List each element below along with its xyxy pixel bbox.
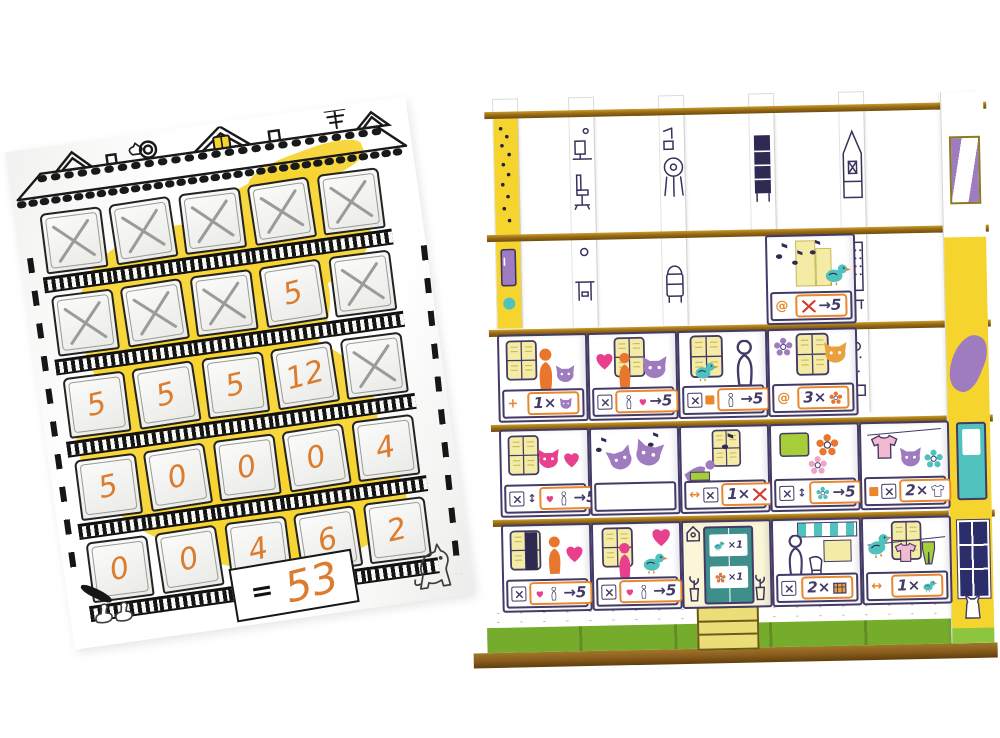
balcony-planter: @ 3× (772, 382, 855, 413)
flower-icon (715, 572, 726, 583)
balcony-planter: →5 (506, 578, 589, 609)
potted-plant-icon (686, 575, 703, 603)
paint-splat-icon (773, 337, 793, 357)
heart-icon (563, 543, 585, 563)
crossed-window-checkbox-icon (703, 487, 718, 502)
crossed-window-checkbox-icon (687, 393, 702, 408)
repeat-icon: @ (775, 300, 788, 313)
shop-window (823, 540, 851, 563)
window-cell: 0 (143, 443, 215, 530)
divider-bed-panel (661, 238, 689, 326)
window-cell: X (247, 177, 319, 264)
window-cell: X (120, 278, 192, 365)
crossed-window-checkbox-icon (881, 484, 896, 499)
person-icon (546, 586, 561, 600)
crate-icon (832, 580, 847, 594)
rule-text: →5 (563, 585, 586, 600)
cushion (690, 471, 710, 480)
orange-square-icon (705, 395, 714, 404)
bird-icon (714, 540, 726, 551)
music-note-icon (775, 241, 788, 260)
box-cats-jam-session (589, 426, 681, 516)
curtain-window-icon (949, 136, 981, 205)
entrance-double-door: ×1 ×1 (703, 526, 755, 605)
door-sign: ×1 (709, 534, 747, 557)
balcony-planter: 2× (864, 476, 947, 507)
divider-fridge-panel (495, 241, 523, 329)
score-sheet: X X X X X X X X 5 X 5 5 5 12 X 5 (5, 96, 475, 649)
heart-icon (545, 491, 554, 505)
cat-icon (639, 353, 670, 382)
rule-plate: →5 (809, 480, 861, 504)
balcony-planter: →5 (596, 576, 679, 607)
rule-text: 1× (897, 578, 920, 593)
flower-icon (815, 433, 839, 457)
fridge-doodle-icon (496, 241, 522, 328)
total-value: 53 (280, 556, 342, 610)
box-bird-laundry: ↔ 1× (861, 515, 953, 605)
heart-icon (649, 525, 673, 547)
window-cell: 5 (62, 370, 134, 457)
flower-icon (828, 390, 843, 404)
desk-chair-doodle-icon (569, 117, 595, 233)
window-value: 0 (303, 441, 329, 475)
crossed-window-checkbox-icon (779, 486, 794, 501)
flower-icon (923, 449, 943, 469)
window-value: 5 (84, 388, 109, 422)
bed-doodle-icon (662, 238, 688, 325)
balcony-planter: ↕ →5 (774, 477, 857, 508)
box-woman-heart-cat: →5 (587, 331, 679, 421)
music-note-icon (791, 248, 803, 265)
box-cat-in-sweater: ↕ →5 (499, 428, 591, 518)
window-cell: X (178, 186, 250, 273)
sign-text: ×1 (728, 571, 744, 582)
window-value: 5 (153, 378, 179, 412)
rule-plate: →5 (795, 294, 847, 318)
balcony-planter: →5 (592, 386, 675, 417)
balcony-planter: →5 (682, 384, 765, 415)
rule-text: 1× (533, 396, 556, 411)
window-cell: 5 (201, 351, 273, 438)
divider-table-panel (571, 240, 599, 328)
crossed-window-checkbox-icon (601, 584, 616, 599)
rule-text: →5 (818, 298, 841, 313)
rule-plate: →5 (619, 579, 682, 603)
balcony-planter: @ →5 (770, 290, 853, 321)
cat-doodle-icon (406, 539, 458, 593)
box-man-in-love: →5 (501, 523, 593, 613)
crossed-window-icon (752, 487, 767, 501)
divider-drums-panel (658, 115, 686, 232)
crossed-window-icon (801, 299, 816, 313)
rule-plate: →5 (529, 581, 592, 605)
balcony-planter: ↕ →5 (504, 483, 587, 514)
divider-dresser-panel (748, 113, 776, 230)
open-shutter (525, 532, 538, 570)
window-value: X (211, 286, 238, 320)
window-cell: X (189, 269, 261, 356)
window-value: 5 (96, 470, 121, 504)
box-entrance-door: ×1 ×1 (681, 519, 773, 609)
window-value: 0 (234, 451, 259, 485)
cat-icon (558, 396, 573, 410)
music-note-icon (721, 431, 734, 450)
rule-plate: →5 (615, 389, 678, 413)
rule-plate: 3× (797, 386, 849, 410)
box-lounging-woman: ↔ 1× (679, 424, 771, 514)
shelf-bar (487, 226, 943, 243)
window-value: X (60, 223, 87, 257)
table-doodle-icon (572, 240, 598, 327)
window-cell: 12 (270, 341, 342, 428)
potted-plant-icon (752, 573, 769, 601)
attic-doodle-icon (839, 111, 865, 227)
box-grandma-and-cat: + 1× (497, 333, 589, 423)
window-cell: 4 (351, 413, 423, 500)
dresser-doodle-icon (749, 113, 775, 229)
person-icon (621, 394, 636, 408)
horizontal-arrows-icon: ↔ (871, 580, 882, 593)
window-value: X (141, 296, 169, 330)
door-sign: ×1 (710, 566, 748, 589)
bird-icon (642, 551, 668, 574)
window-value: 4 (373, 431, 398, 465)
product-photo: X X X X X X X X 5 X 5 5 5 12 X 5 (0, 0, 1000, 738)
shelf-bar (484, 103, 940, 120)
person-icon (636, 584, 651, 598)
shirt-icon (930, 483, 945, 497)
heart-icon (638, 394, 647, 408)
balcony-planter: + 1× (502, 388, 585, 419)
rule-plate: 1× (721, 482, 773, 506)
balcony-planter (594, 481, 677, 512)
side-door-icon (956, 422, 988, 501)
orange-square-icon (869, 487, 878, 496)
ivy-doodle-icon (493, 118, 519, 234)
balcony-planter: ↔ 1× (866, 570, 949, 601)
equals-label: = (248, 574, 275, 608)
white-cat-icon (959, 592, 986, 623)
divider-ivy-panel (492, 118, 520, 235)
box-bird-and-cat-lady: →5 (677, 329, 769, 419)
drums-doodle-icon (659, 115, 685, 231)
sign-text: ×1 (728, 539, 744, 550)
box-shirt-and-cat: 2× (859, 420, 951, 510)
rule-plate: 1× (527, 391, 579, 415)
window-value: X (361, 349, 388, 383)
towel-icon (777, 429, 812, 460)
flower-icon (815, 485, 830, 499)
cardboard-building: @ →5 + 1× (462, 87, 1000, 680)
window-value: X (199, 204, 226, 238)
window-value: 5 (280, 276, 306, 310)
heart-icon (535, 586, 544, 600)
rule-text: 1× (727, 487, 750, 502)
window-cell: X (339, 331, 411, 418)
crossed-window-checkbox-icon (597, 394, 612, 409)
rule-plate: 2× (801, 575, 853, 599)
window-cell: 0 (282, 423, 354, 510)
rule-text: →5 (649, 393, 672, 408)
vertical-arrows-icon: ↕ (527, 493, 536, 504)
window-value: 12 (283, 356, 328, 395)
rule-text: 2× (905, 483, 928, 498)
window-value: X (338, 184, 365, 218)
sweater-icon (893, 542, 917, 562)
heart-icon (625, 585, 634, 599)
rule-text: →5 (653, 583, 676, 598)
window-cell: X (39, 206, 111, 293)
rule-plate: 1× (891, 574, 943, 598)
balcony-planter: 2× (776, 572, 859, 603)
box-singing-bird: @ →5 (765, 233, 857, 325)
window-value: 5 (223, 368, 248, 402)
window-value: 0 (165, 460, 191, 494)
rule-text: 2× (807, 580, 830, 595)
woman-icon (613, 542, 636, 580)
window-cell: X (316, 167, 388, 254)
music-note-icon (809, 238, 821, 255)
cat-icon (535, 447, 561, 472)
ducks-icon (90, 593, 140, 629)
heart-icon (561, 450, 581, 468)
window-value: X (268, 194, 296, 228)
bird-icon (922, 578, 937, 592)
side-grass-block (952, 628, 994, 644)
window-value: X (349, 267, 376, 301)
crossed-window-checkbox-icon (509, 491, 524, 506)
person-icon (556, 491, 571, 505)
window-cell: 0 (212, 433, 284, 520)
rule-plate: 2× (899, 478, 951, 502)
window-cell: X (328, 249, 400, 336)
divider-attic-panel (838, 111, 866, 228)
night-window-icon (957, 520, 991, 599)
box-tiger-cat-painting: @ 3× (767, 327, 859, 417)
vertical-arrows-icon: ↕ (797, 487, 806, 498)
box-grocery-shop: 2× (771, 517, 863, 607)
crossed-window-checkbox-icon (511, 586, 526, 601)
window-cell: 5 (74, 452, 146, 539)
rule-plate: →5 (717, 387, 769, 411)
window-cell: X (51, 288, 123, 375)
repeat-icon: @ (777, 392, 790, 405)
window-value: X (72, 306, 99, 340)
grandma-icon (783, 534, 808, 576)
rule-text: 3× (803, 390, 826, 405)
cat-icon (897, 445, 923, 470)
cat-icon (554, 363, 577, 384)
cat-lady-icon (731, 339, 758, 388)
horizontal-arrows-icon: ↔ (689, 489, 700, 502)
window-value: X (129, 213, 157, 247)
divider-desk-chair-panel (568, 117, 596, 234)
window-cell: X (108, 196, 180, 283)
balcony-planter: ↔ 1× (684, 479, 767, 510)
flower-icon (808, 455, 828, 475)
window-cell: 5 (258, 259, 330, 346)
crossed-window-checkbox-icon (781, 581, 796, 596)
bird-icon (694, 360, 718, 381)
woman-icon (613, 352, 636, 390)
person-icon (723, 392, 738, 406)
rule-text: →5 (740, 391, 763, 406)
heart-icon (593, 350, 615, 370)
pants-icon (919, 540, 938, 566)
sweater-icon (869, 433, 900, 460)
man-icon (543, 536, 566, 576)
window-cell: 5 (131, 360, 203, 447)
plus-icon: + (507, 397, 518, 410)
rule-text: →5 (832, 484, 855, 499)
bird-icon (823, 261, 850, 286)
box-towel-and-flowers: ↕ →5 (769, 422, 861, 512)
tiger-cat-icon (821, 340, 850, 367)
box-woman-with-bird: →5 (591, 521, 683, 611)
shopping-trolley-icon (806, 552, 826, 574)
birdhouse-icon (685, 525, 701, 543)
entrance-steps (697, 605, 760, 650)
